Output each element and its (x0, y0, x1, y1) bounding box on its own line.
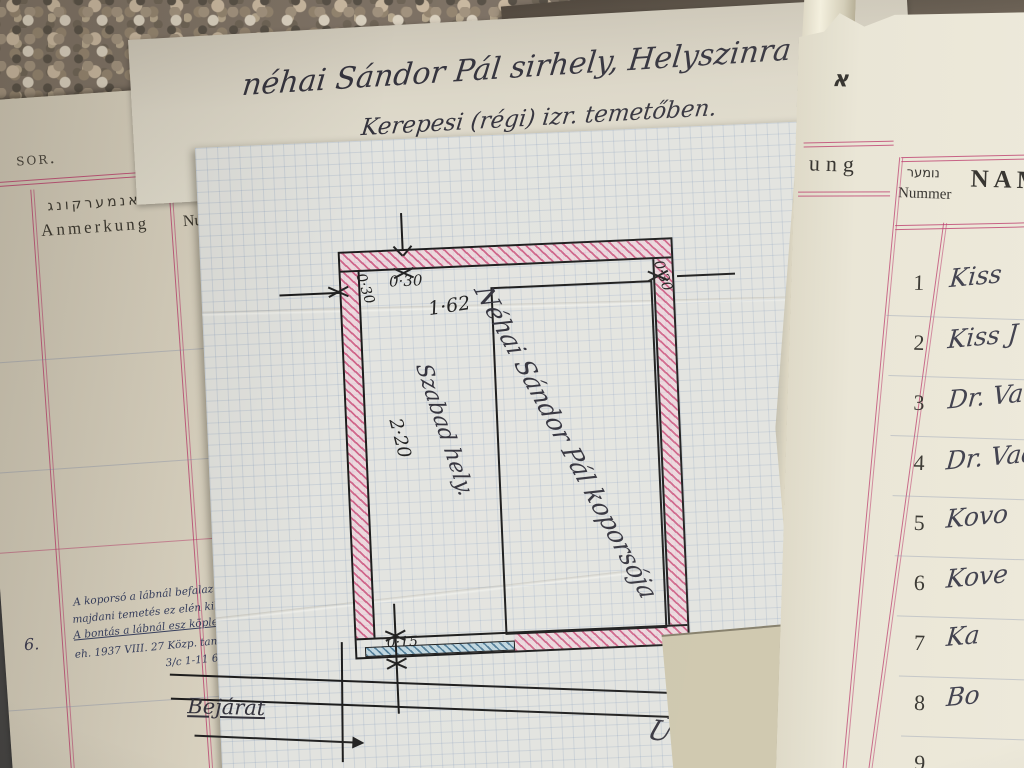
entrance-arrow-head (352, 736, 365, 749)
row-name: Dr. Va (947, 378, 1024, 414)
right-ledger-anmerkung-fragment: ung (809, 150, 861, 178)
left-ledger-column-line-1 (30, 189, 79, 768)
entrance-label: Bejárat (187, 694, 265, 720)
right-ledger-header-top-rule (901, 154, 1024, 162)
right-ledger-number-col-left-line (840, 157, 903, 768)
dim-extension-line-right (677, 273, 735, 277)
right-ledger-name-header: NAM (970, 165, 1024, 195)
right-ledger-row-line (890, 435, 1024, 441)
left-ledger-row-line (0, 457, 216, 474)
plot-edge-extension-line (341, 642, 344, 762)
left-ledger-row-line (0, 537, 222, 554)
right-ledger-header-bottom-rule (895, 222, 1024, 230)
row-name: Kiss J (947, 319, 1019, 355)
right-ledger-hebrew-mark: א (830, 67, 853, 92)
free-space-label: Szabad hely. (410, 362, 479, 498)
row-number: 7 (914, 630, 926, 656)
dim-tick-top-inner (394, 265, 413, 282)
right-ledger-rule-under-ung (798, 191, 890, 196)
row-number: 8 (914, 690, 926, 716)
dim-inner-width-label: 1·62 (427, 292, 472, 320)
left-ledger-anmerkung-hebrew: אנמערקונג (47, 192, 141, 214)
wall-top-hatch (340, 239, 672, 272)
row-name: Dr. Vad (945, 438, 1024, 476)
wall-left-hatch (341, 272, 376, 638)
row-name: Bo (945, 680, 981, 712)
row-number: 6 (913, 570, 925, 596)
row-name: Ka (945, 620, 981, 652)
row-number: 9 (914, 750, 926, 768)
row-name: Kiss (948, 259, 1003, 293)
plan-title-line1: néhai Sándor Pál sirhely, Helyszinra (240, 32, 793, 103)
photo-of-grave-plot-plan: sor. ד m אנמערקונג Anmerkung ער Nu 6. A … (0, 0, 1024, 768)
row-number: 1 (913, 270, 925, 296)
crypt-rectangle: Néhai Sándor Pál koporsója (490, 280, 667, 635)
right-ledger-row-line (901, 736, 1024, 741)
right-ledger-row-line (897, 615, 1024, 620)
dim-tick-right (649, 268, 668, 285)
row-number: 3 (913, 390, 925, 416)
row-name: Kove (945, 559, 1009, 594)
left-ledger-corner-label: sor. (16, 148, 58, 171)
plot-outer-wall: 0·15 Néhai Sándor Pál koporsója 0·30 1·6… (338, 237, 690, 659)
dim-inner-height-label: 2·20 (385, 416, 415, 460)
right-ledger-nummer-hebrew: נומער (907, 165, 941, 181)
dim-arrow-top (395, 239, 410, 252)
row-name: Kovo (945, 499, 1009, 534)
left-ledger-anmerkung-latin: Anmerkung (40, 214, 149, 242)
row-number: 5 (913, 510, 925, 536)
right-ledger-row-line (899, 675, 1024, 680)
right-ledger-rule-top-left (804, 141, 894, 148)
right-ledger-nummer-latin: Nummer (898, 185, 952, 204)
left-ledger-row-number: 6. (23, 634, 40, 654)
row-number: 2 (913, 330, 925, 356)
dim-tick-left (329, 283, 348, 300)
row-number: 4 (913, 450, 925, 476)
right-ledger-page: א ung נומער Nummer NAM 1 Kiss 2 Kiss J 3… (775, 4, 1024, 768)
